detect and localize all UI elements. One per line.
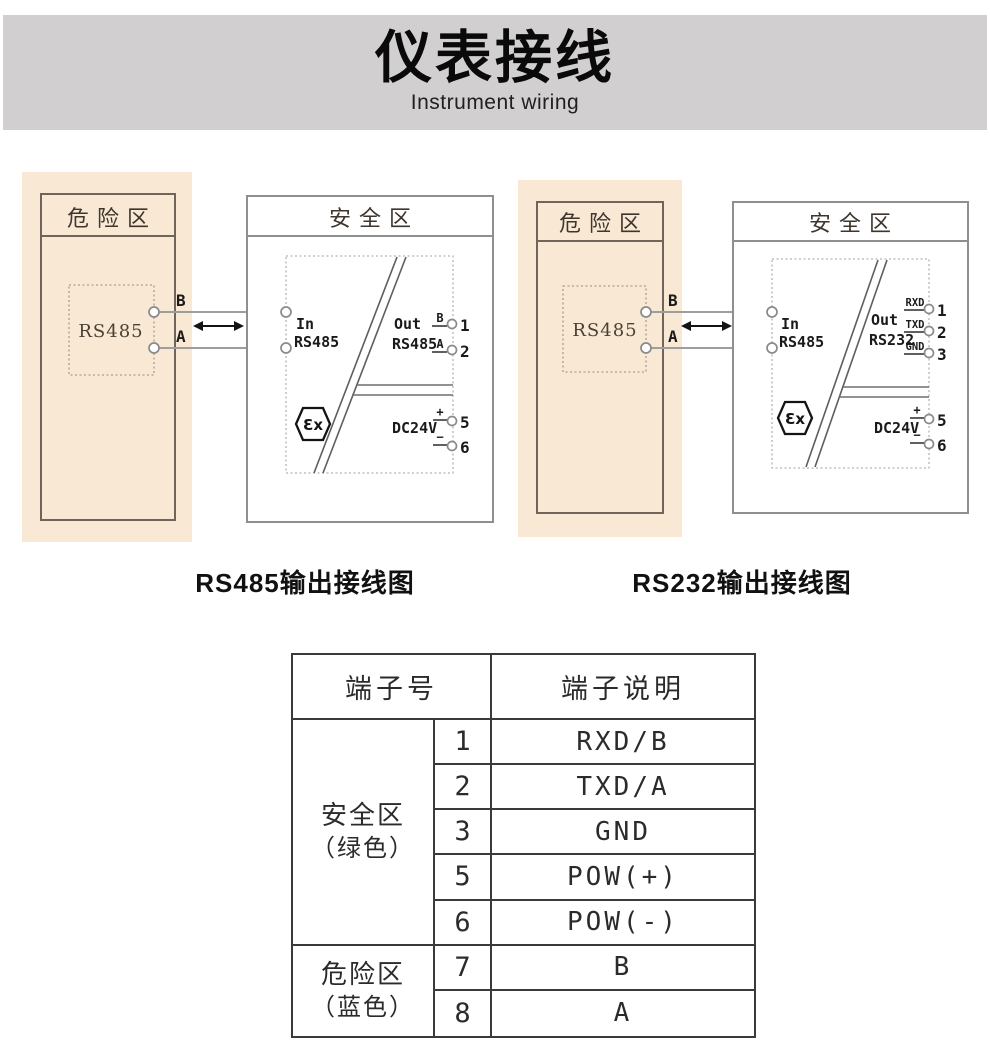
svg-text:3: 3: [937, 345, 947, 364]
table-cell-num: 8: [435, 991, 492, 1036]
rs485-wiring-diagram: 危险区 RS485 B A 7 8 安全区 In RS485 Out RS485: [15, 168, 505, 553]
out-type-label: RS485: [392, 335, 437, 353]
safe-zone-title: 安全区: [329, 207, 419, 232]
table-cell-desc: B: [492, 946, 754, 991]
table-cell-num: 2: [435, 765, 492, 810]
table-header-terminal-no: 端子号: [293, 655, 492, 720]
in-label: In: [781, 315, 799, 333]
table-cell-num: 3: [435, 810, 492, 855]
in-type-label: RS485: [294, 333, 339, 351]
page-title: 仪表接线: [3, 29, 987, 89]
safe-zone-box: [733, 202, 968, 513]
table-cell-desc: GND: [492, 810, 754, 855]
device-terminal-a: [641, 343, 651, 353]
page-subtitle: Instrument wiring: [3, 91, 987, 115]
rs485-device-label: RS485: [78, 321, 143, 342]
in-terminal-7: [281, 307, 291, 317]
wire-label-b: B: [176, 291, 186, 310]
in-terminal-8: [767, 343, 777, 353]
rs232-wiring-diagram: 危险区 RS485 B A 7 8 安全区 In RS485 Out RS232: [508, 168, 988, 553]
device-terminal-a: [149, 343, 159, 353]
table-zone-hazard: 危险区 （蓝色）: [293, 946, 435, 1036]
table-cell-desc: POW(-): [492, 901, 754, 946]
table-cell-desc: A: [492, 991, 754, 1036]
svg-text:TXD: TXD: [906, 319, 925, 331]
wire-label-b: B: [668, 291, 678, 310]
device-terminal-b: [149, 307, 159, 317]
terminal-table: 端子号 端子说明 安全区 （绿色） 1 RXD/B 2 TXD/A 3 GND …: [291, 653, 756, 1038]
svg-text:2: 2: [460, 342, 470, 361]
table-header-terminal-desc: 端子说明: [492, 655, 754, 720]
svg-text:Ɛx: Ɛx: [785, 410, 805, 428]
wire-label-a: A: [176, 327, 186, 346]
svg-text:2: 2: [937, 323, 947, 342]
power-minus-sign: −: [436, 430, 443, 444]
power-terminal-5: [448, 417, 457, 426]
table-zone-safe: 安全区 （绿色）: [293, 720, 435, 946]
power-minus-sign: −: [913, 428, 920, 442]
header-banner: 仪表接线 Instrument wiring: [3, 15, 987, 130]
page: 仪表接线 Instrument wiring 危险区 RS485 B A 7 8…: [0, 0, 990, 1058]
rs485-device-label: RS485: [572, 320, 637, 341]
table-cell-num: 7: [435, 946, 492, 991]
svg-text:A: A: [436, 337, 444, 351]
power-label: DC24V: [874, 419, 919, 437]
svg-text:RXD: RXD: [906, 297, 925, 309]
power-terminal-6: [448, 442, 457, 451]
power-plus-sign: +: [436, 405, 443, 419]
out-label: Out: [394, 315, 421, 333]
svg-text:1: 1: [460, 316, 470, 335]
svg-text:6: 6: [460, 438, 470, 457]
svg-text:6: 6: [937, 436, 947, 455]
in-terminal-8: [281, 343, 291, 353]
device-terminal-b: [641, 307, 651, 317]
out-label: Out: [871, 311, 898, 329]
safe-zone-box: [247, 196, 493, 522]
power-label: DC24V: [392, 419, 437, 437]
in-terminal-7: [767, 307, 777, 317]
power-terminal-6: [925, 440, 934, 449]
hazard-zone-title: 危险区: [67, 207, 157, 232]
svg-text:Ɛx: Ɛx: [303, 416, 323, 434]
table-cell-num: 5: [435, 855, 492, 900]
table-cell-num: 1: [435, 720, 492, 765]
table-cell-desc: POW(+): [492, 855, 754, 900]
table-cell-num: 6: [435, 901, 492, 946]
wire-label-a: A: [668, 327, 678, 346]
power-terminal-5: [925, 415, 934, 424]
bidirectional-arrow-icon: [193, 321, 244, 331]
svg-text:B: B: [436, 311, 443, 325]
table-cell-desc: TXD/A: [492, 765, 754, 810]
in-label: In: [296, 315, 314, 333]
diagram-caption-rs485: RS485输出接线图: [155, 563, 455, 600]
in-type-label: RS485: [779, 333, 824, 351]
svg-text:5: 5: [460, 413, 470, 432]
svg-text:5: 5: [937, 411, 947, 430]
table-cell-desc: RXD/B: [492, 720, 754, 765]
svg-text:GND: GND: [906, 341, 925, 353]
hazard-zone-title: 危险区: [559, 212, 649, 237]
power-plus-sign: +: [913, 403, 920, 417]
safe-zone-title: 安全区: [809, 212, 899, 237]
diagram-caption-rs232: RS232输出接线图: [592, 563, 892, 600]
svg-text:1: 1: [937, 301, 947, 320]
bidirectional-arrow-icon: [681, 321, 732, 331]
